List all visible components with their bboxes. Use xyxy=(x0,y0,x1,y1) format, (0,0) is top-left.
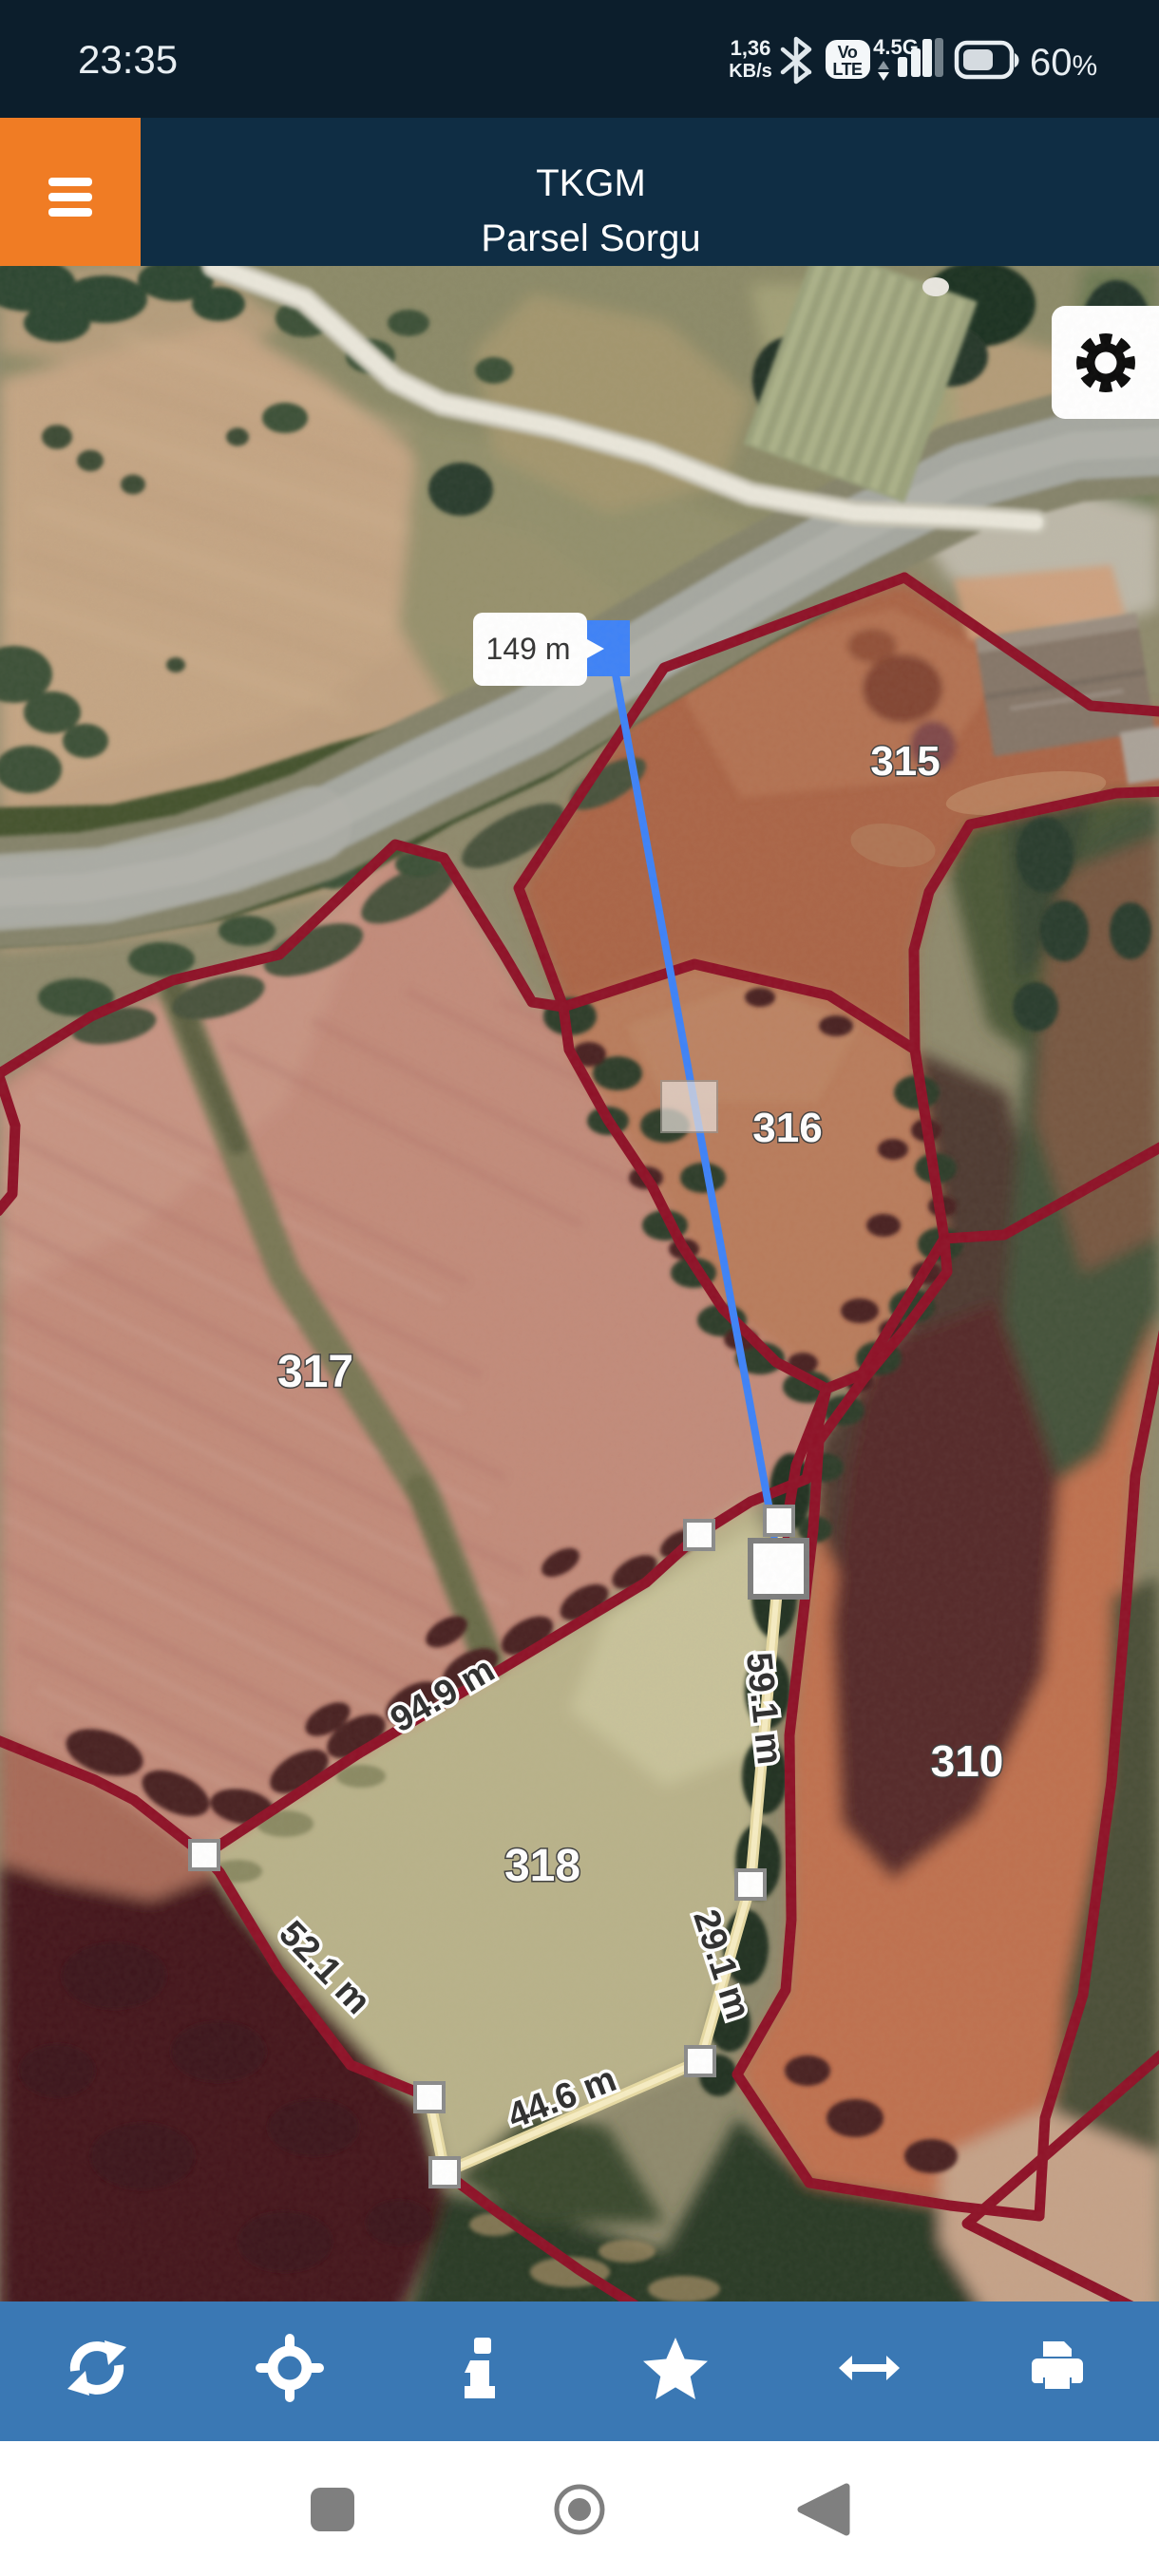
svg-text:KB/s: KB/s xyxy=(729,61,772,82)
svg-text:Vo: Vo xyxy=(838,43,858,62)
svg-text:LTE: LTE xyxy=(832,60,863,79)
svg-text:1,36: 1,36 xyxy=(731,36,771,60)
svg-text:60%: 60% xyxy=(1030,42,1097,84)
